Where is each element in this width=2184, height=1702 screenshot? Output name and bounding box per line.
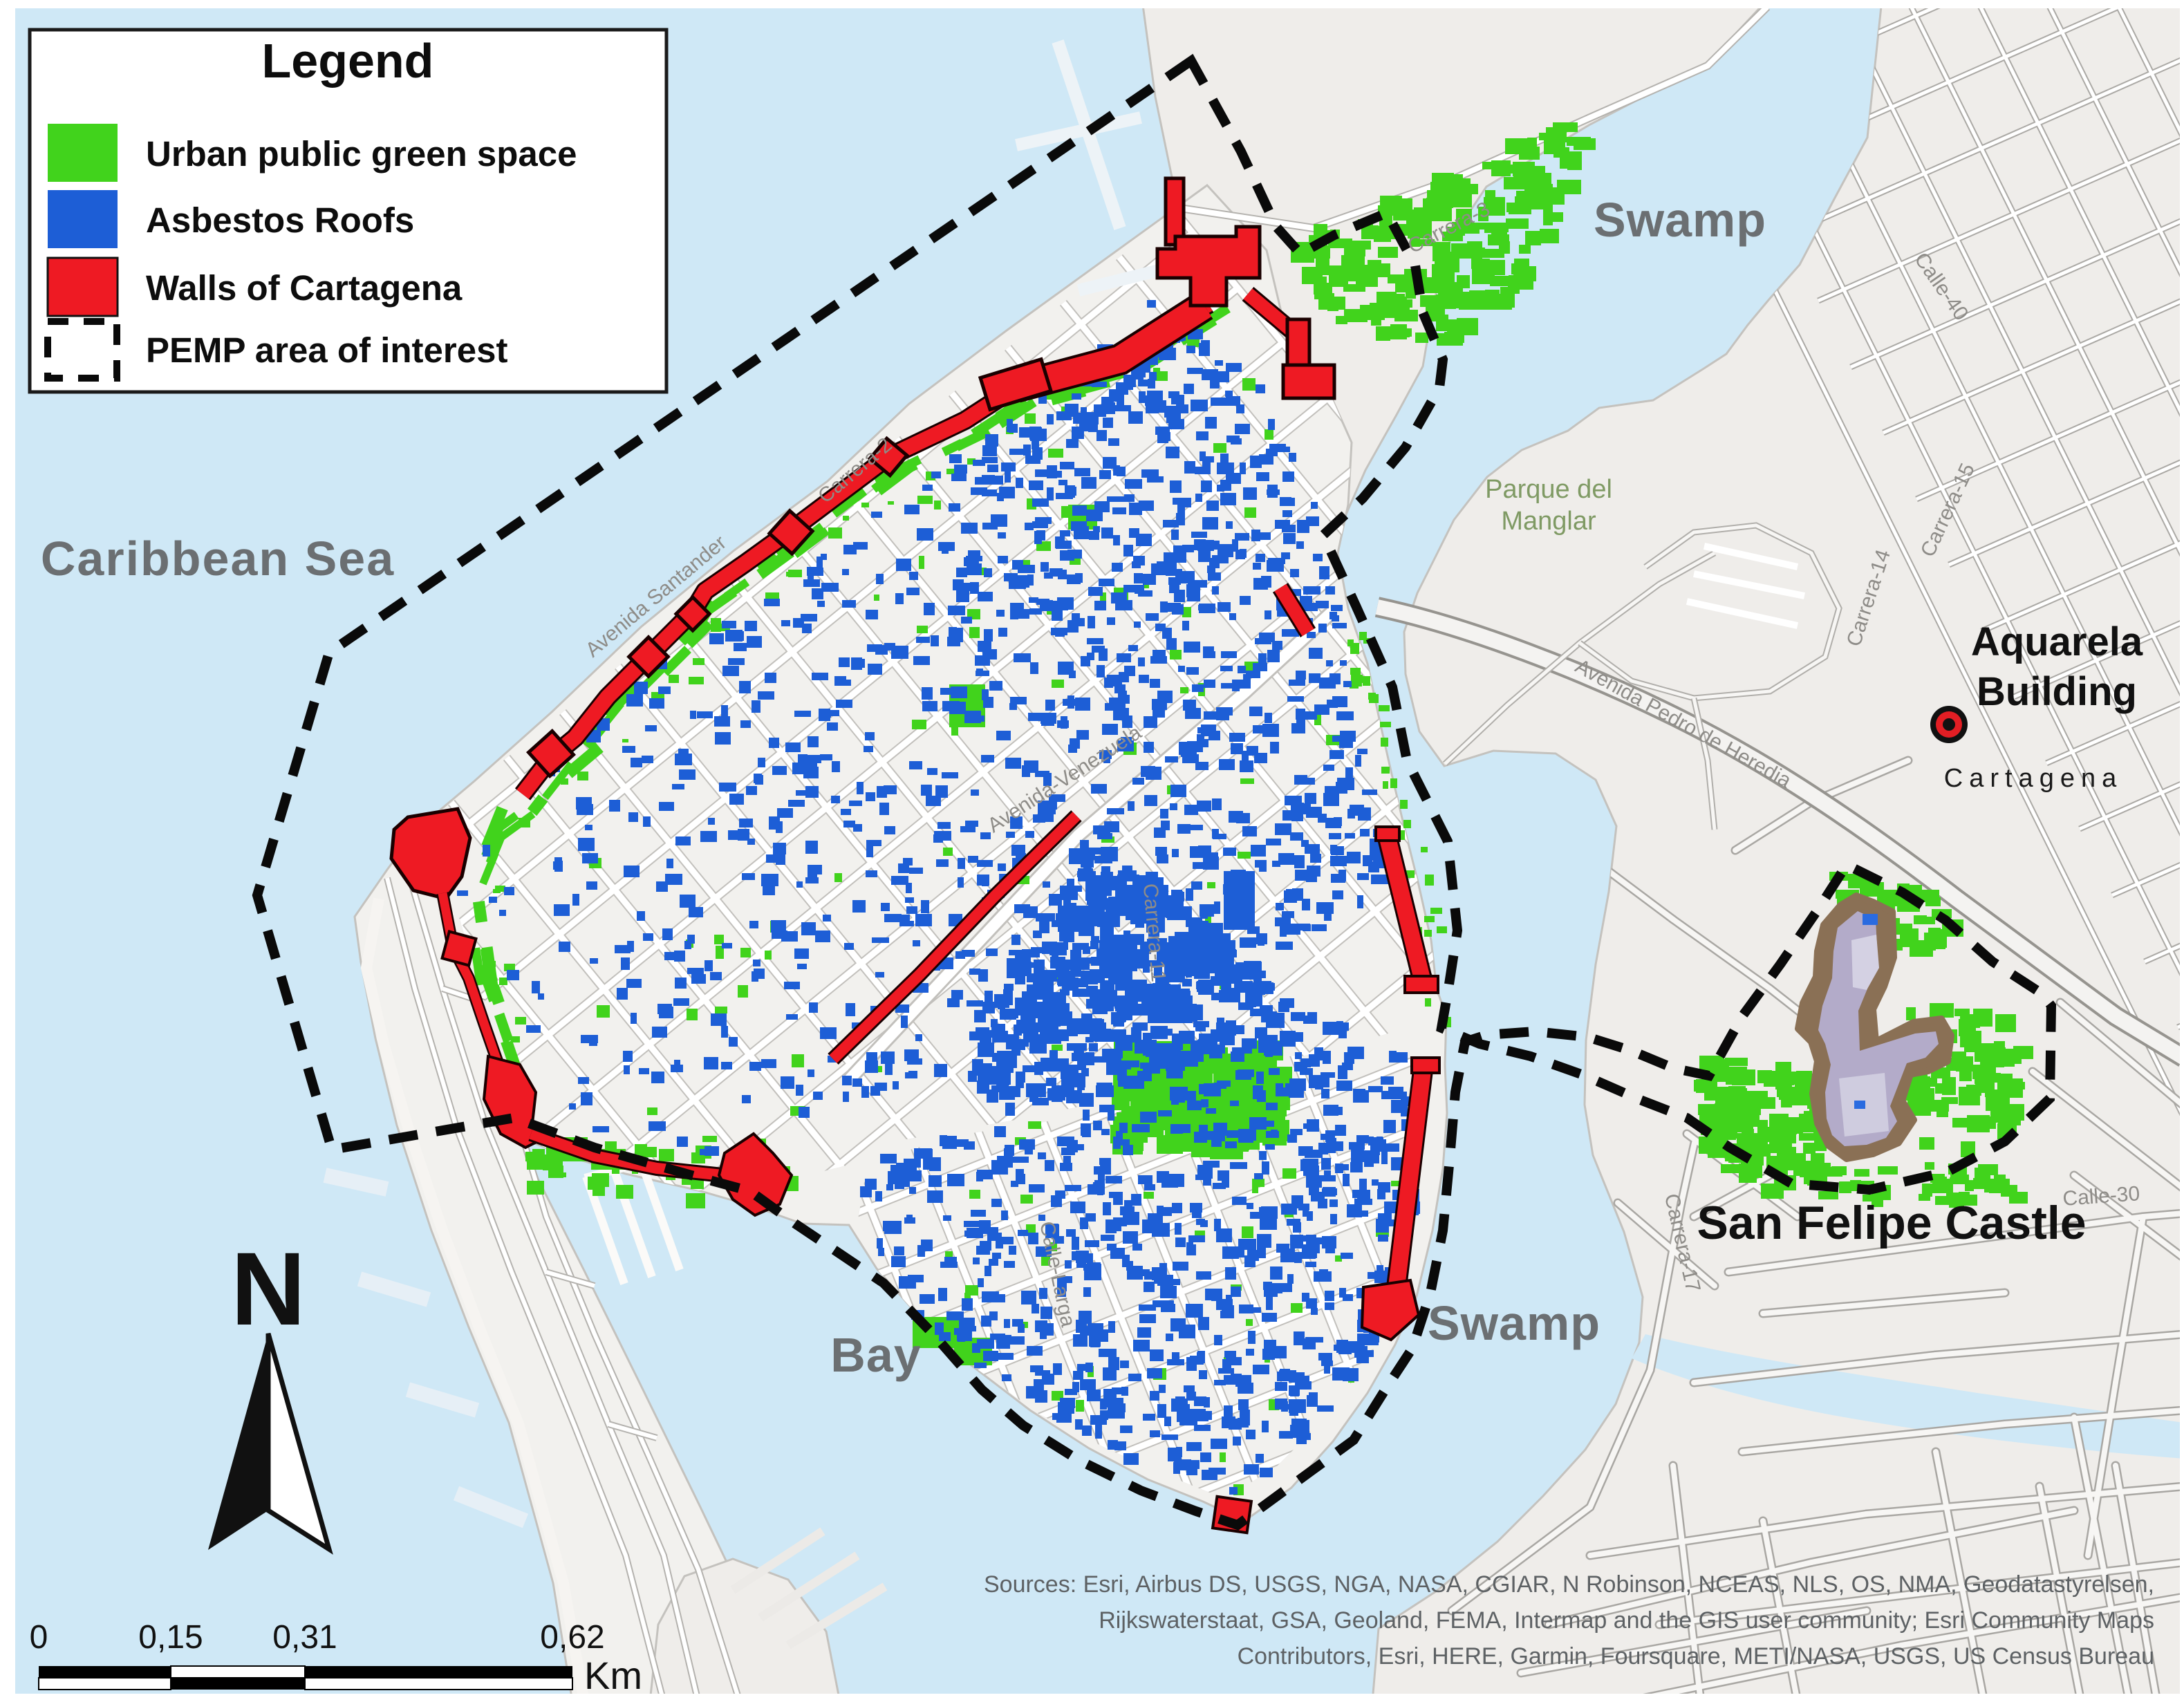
- svg-text:0: 0: [30, 1619, 48, 1656]
- svg-text:Sources: Esri, Airbus DS, USGS: Sources: Esri, Airbus DS, USGS, NGA, NAS…: [984, 1571, 2154, 1598]
- svg-text:Urban public green space: Urban public green space: [146, 134, 577, 174]
- svg-text:Contributors, Esri, HERE, Garm: Contributors, Esri, HERE, Garmin, Foursq…: [1238, 1643, 2154, 1670]
- svg-text:Rijkswaterstaat, GSA, Geoland,: Rijkswaterstaat, GSA, Geoland, FEMA, Int…: [1099, 1607, 2154, 1634]
- svg-text:0,62: 0,62: [540, 1619, 604, 1656]
- svg-text:PEMP area of interest: PEMP area of interest: [146, 330, 507, 370]
- svg-text:Asbestos Roofs: Asbestos Roofs: [146, 200, 414, 240]
- svg-text:Swamp: Swamp: [1428, 1296, 1600, 1350]
- svg-text:N: N: [231, 1231, 306, 1347]
- svg-text:0,15: 0,15: [138, 1619, 203, 1656]
- svg-text:Km: Km: [584, 1654, 642, 1697]
- svg-text:Parque del: Parque del: [1485, 475, 1612, 504]
- svg-text:0,31: 0,31: [272, 1619, 337, 1656]
- svg-text:Manglar: Manglar: [1501, 507, 1596, 536]
- svg-text:Bay: Bay: [830, 1328, 921, 1382]
- svg-text:Aquarela: Aquarela: [1971, 619, 2143, 664]
- svg-text:Legend: Legend: [262, 34, 434, 88]
- svg-text:Building: Building: [1977, 669, 2137, 714]
- svg-text:Cartagena: Cartagena: [1944, 764, 2122, 793]
- svg-text:Caribbean Sea: Caribbean Sea: [41, 532, 395, 586]
- svg-text:Walls of Cartagena: Walls of Cartagena: [146, 268, 463, 308]
- svg-text:San Felipe Castle: San Felipe Castle: [1697, 1197, 2086, 1249]
- svg-text:Swamp: Swamp: [1594, 193, 1766, 247]
